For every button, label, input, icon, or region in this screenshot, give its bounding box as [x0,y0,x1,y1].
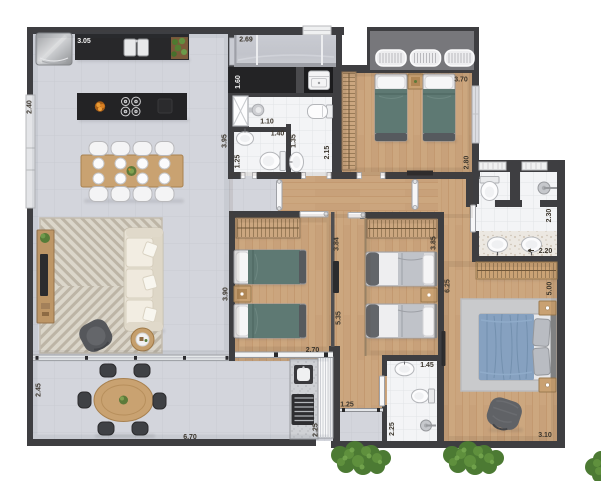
svg-text:3.05: 3.05 [77,38,91,45]
svg-text:1.25: 1.25 [340,402,354,409]
svg-text:2.45: 2.45 [35,383,42,397]
svg-text:1.45: 1.45 [420,362,434,369]
svg-text:5.00: 5.00 [546,282,553,296]
svg-text:5.35: 5.35 [335,311,342,325]
svg-text:2.15: 2.15 [324,146,331,160]
svg-text:3.85: 3.85 [430,236,437,250]
svg-text:1.25: 1.25 [234,155,241,169]
svg-text:2.25: 2.25 [312,423,319,437]
svg-text:1.60: 1.60 [235,75,242,89]
svg-text:3.95: 3.95 [221,134,228,148]
svg-text:1.40: 1.40 [271,131,285,138]
svg-text:3.10: 3.10 [538,432,552,439]
svg-text:6.25: 6.25 [444,279,451,293]
svg-text:6.70: 6.70 [183,434,197,441]
svg-text:2.69: 2.69 [239,37,253,44]
svg-text:2.25: 2.25 [389,422,396,436]
svg-text:3.84: 3.84 [333,237,340,251]
svg-text:3.90: 3.90 [222,287,229,301]
svg-text:2.70: 2.70 [306,347,320,354]
svg-text:2.30: 2.30 [546,209,553,223]
svg-text:2.80: 2.80 [463,156,470,170]
svg-text:2.40: 2.40 [26,100,33,114]
svg-text:2.20: 2.20 [539,248,553,255]
svg-text:1.10: 1.10 [260,119,274,126]
svg-text:3.70: 3.70 [454,77,468,84]
svg-text:1.35: 1.35 [290,134,297,148]
